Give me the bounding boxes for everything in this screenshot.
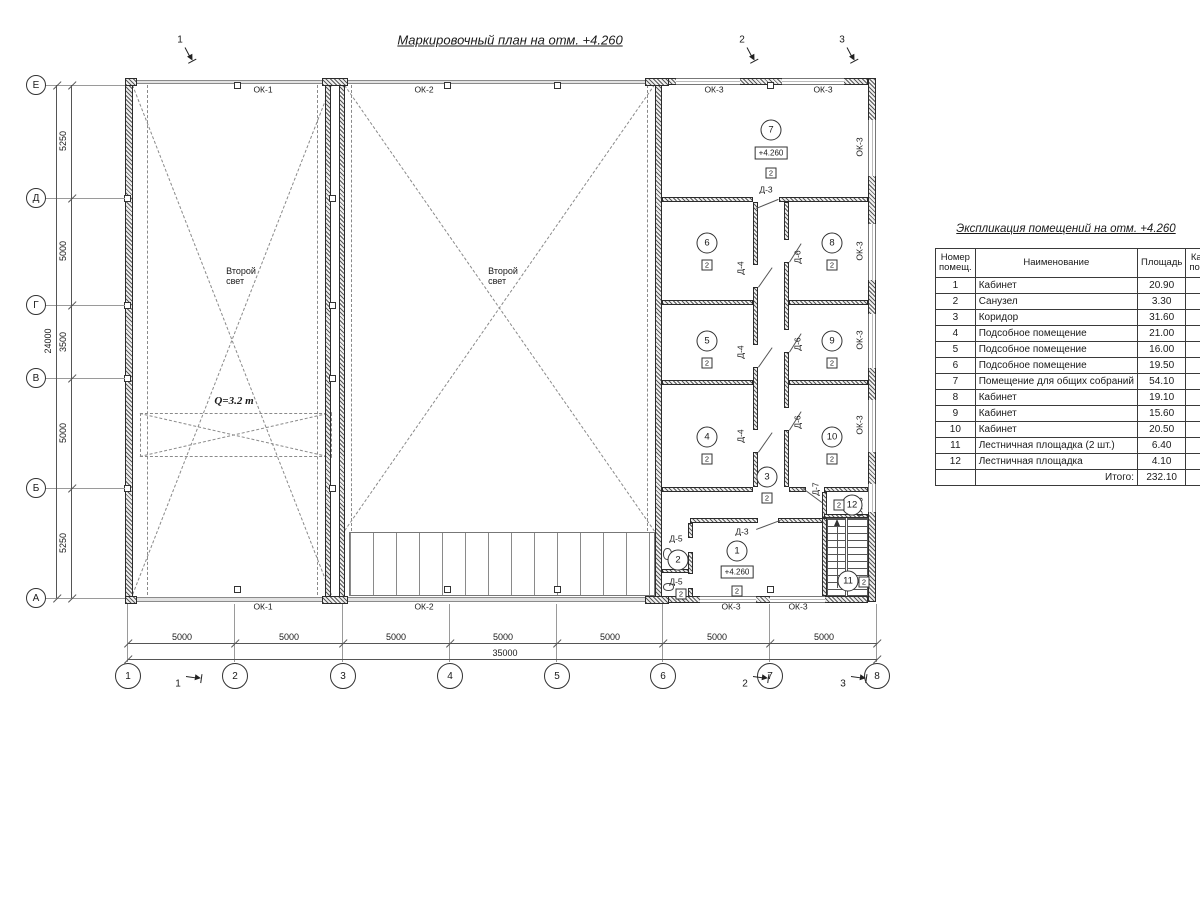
column-marker — [554, 82, 561, 89]
schedule-cell — [1186, 294, 1200, 310]
schedule-cell — [1186, 406, 1200, 422]
room-number-bubble: 3 — [757, 467, 778, 488]
dashed-outline-line — [147, 85, 148, 595]
dim-label: 5250 — [58, 131, 68, 151]
wall — [753, 367, 758, 430]
crane-outline — [140, 413, 332, 457]
room-category-square: 2 — [732, 586, 743, 597]
dim-label: 5000 — [386, 632, 406, 642]
schedule-cell: 54.10 — [1137, 374, 1185, 390]
schedule-row: 7Помещение для общих собраний54.10 — [936, 374, 1200, 390]
wall — [645, 596, 669, 604]
room-category-square: 2 — [859, 577, 870, 588]
column-marker — [767, 586, 774, 593]
schedule-cell: 19.10 — [1137, 390, 1185, 406]
axis-extension-line — [449, 604, 450, 662]
axis-bubble-row: А — [26, 588, 46, 608]
table-title: Экспликация помещений на отм. +4.260 — [956, 223, 1175, 235]
schedule-cell: Кабинет — [975, 422, 1137, 438]
wall — [778, 518, 824, 523]
dim-label: 3500 — [58, 332, 68, 352]
schedule-row: 9Кабинет15.60 — [936, 406, 1200, 422]
axis-bubble-col: 3 — [330, 663, 356, 689]
schedule-cell: 5 — [936, 342, 976, 358]
wall — [784, 352, 789, 408]
dim-line-horizontal-segments — [128, 643, 877, 644]
window-opening — [868, 224, 876, 280]
curtain-wall — [133, 597, 655, 602]
dim-label: 5000 — [58, 241, 68, 261]
schedule-cell — [1186, 390, 1200, 406]
window-label: ОК-3 — [856, 330, 865, 349]
schedule-row: 5Подсобное помещение16.00 — [936, 342, 1200, 358]
note-label: Q=3.2 т — [214, 395, 253, 407]
axis-extension-line — [45, 198, 125, 199]
window-opening — [868, 120, 876, 176]
dim-label: 5000 — [279, 632, 299, 642]
column-marker — [124, 485, 131, 492]
section-mark-number: 2 — [739, 35, 745, 46]
wall — [645, 78, 669, 86]
schedule-cell: 7 — [936, 374, 976, 390]
schedule-row: 10Кабинет20.50 — [936, 422, 1200, 438]
room-number-bubble: 6 — [697, 233, 718, 254]
schedule-cell: Кабинет — [975, 406, 1137, 422]
schedule-header-cell: Наименование — [975, 249, 1137, 278]
window-label: ОК-3 — [856, 415, 865, 434]
door-label: Д-5 — [669, 578, 682, 587]
stair-arrow-head — [834, 519, 840, 526]
wall — [322, 596, 348, 604]
dim-label: 5000 — [58, 423, 68, 443]
axis-bubble-col: 6 — [650, 663, 676, 689]
wall — [824, 487, 868, 492]
schedule-cell: Коридор — [975, 310, 1137, 326]
wall — [662, 487, 753, 492]
axis-extension-line — [234, 604, 235, 662]
schedule-cell: Подсобное помещение — [975, 326, 1137, 342]
schedule-cell: 6.40 — [1137, 438, 1185, 454]
dashed-outline-line — [351, 85, 352, 531]
window-label: ОК-3 — [856, 241, 865, 260]
column-marker — [329, 485, 336, 492]
column-marker — [234, 586, 241, 593]
schedule-cell: 3.30 — [1137, 294, 1185, 310]
section-mark-number: 1 — [177, 35, 183, 46]
axis-extension-line — [45, 378, 125, 379]
elevation-mark: +4.260 — [721, 566, 754, 579]
dim-line-horizontal-total — [128, 659, 877, 660]
room-number-bubble: 4 — [697, 427, 718, 448]
floor-plan-sheet: Маркировочный план на отм. +4.260 Экспли… — [0, 0, 1200, 900]
wall — [784, 430, 789, 487]
column-marker — [329, 195, 336, 202]
wall — [784, 202, 789, 240]
schedule-cell: 16.00 — [1137, 342, 1185, 358]
schedule-row: 1Кабинет20.90 — [936, 278, 1200, 294]
schedule-header-cell: Площадь — [1137, 249, 1185, 278]
column-marker — [124, 302, 131, 309]
door-label: Д-3 — [735, 528, 748, 537]
column-marker — [124, 195, 131, 202]
axis-extension-line — [127, 604, 128, 662]
door-leaf-line — [758, 432, 773, 453]
dashed-outline-line — [647, 85, 648, 531]
schedule-total-cell: 232.10 — [1137, 470, 1185, 486]
wall — [125, 78, 133, 602]
door-label: Д-6 — [794, 337, 803, 350]
column-marker — [329, 302, 336, 309]
column-marker — [444, 82, 451, 89]
platform-strip — [349, 532, 655, 596]
schedule-cell: 1 — [936, 278, 976, 294]
room-number-bubble: 10 — [822, 427, 843, 448]
door-leaf-line — [756, 199, 778, 209]
schedule-cell — [1186, 310, 1200, 326]
section-mark-number: 2 — [742, 679, 748, 690]
schedule-cell: 21.00 — [1137, 326, 1185, 342]
section-mark-arrow — [847, 47, 854, 59]
window-opening — [868, 484, 876, 512]
schedule-cell: Санузел — [975, 294, 1137, 310]
note-label: Второй свет — [226, 266, 256, 286]
room-category-square: 2 — [762, 493, 773, 504]
door-label: Д-5 — [669, 535, 682, 544]
schedule-cell — [1186, 454, 1200, 470]
schedule-cell: 4 — [936, 326, 976, 342]
wall — [789, 380, 868, 385]
schedule-cell: 11 — [936, 438, 976, 454]
room-schedule-table: Номер помещ.НаименованиеПлощадьКат. пом.… — [935, 248, 1200, 486]
schedule-cell: 20.50 — [1137, 422, 1185, 438]
schedule-row: 3Коридор31.60 — [936, 310, 1200, 326]
axis-extension-line — [769, 604, 770, 662]
schedule-cell: 15.60 — [1137, 406, 1185, 422]
schedule-cell: Лестничная площадка (2 шт.) — [975, 438, 1137, 454]
schedule-header-cell: Номер помещ. — [936, 249, 976, 278]
schedule-cell: 4.10 — [1137, 454, 1185, 470]
elevation-mark: +4.260 — [755, 147, 788, 160]
schedule-total-cell — [1186, 470, 1200, 486]
schedule-cell: 2 — [936, 294, 976, 310]
window-label: ОК-1 — [253, 603, 272, 612]
schedule-total-row: Итого:232.10 — [936, 470, 1200, 486]
schedule-cell: Кабинет — [975, 390, 1137, 406]
section-mark-arrow — [185, 47, 192, 59]
window-label: ОК-2 — [414, 603, 433, 612]
axis-bubble-row: В — [26, 368, 46, 388]
schedule-cell — [1186, 438, 1200, 454]
schedule-cell: 9 — [936, 406, 976, 422]
dim-line-vertical-segments — [71, 85, 72, 598]
axis-extension-line — [45, 488, 125, 489]
dim-label: 5000 — [600, 632, 620, 642]
window-label: ОК-3 — [788, 603, 807, 612]
room-number-bubble: 7 — [761, 120, 782, 141]
wall — [662, 596, 868, 603]
door-label: Д-3 — [759, 186, 772, 195]
column-marker — [767, 82, 774, 89]
wall — [125, 78, 137, 86]
axis-extension-line — [342, 604, 343, 662]
room-number-bubble: 2 — [668, 550, 689, 571]
schedule-cell: 12 — [936, 454, 976, 470]
section-mark-number: 3 — [840, 679, 846, 690]
dim-label: 5000 — [814, 632, 834, 642]
wall — [688, 588, 693, 597]
schedule-cell: 3 — [936, 310, 976, 326]
window-label: ОК-1 — [253, 86, 272, 95]
note-label: Второй свет — [488, 266, 518, 286]
schedule-cell: Помещение для общих собраний — [975, 374, 1137, 390]
schedule-total-cell — [936, 470, 976, 486]
window-opening — [868, 400, 876, 452]
window-label: ОК-3 — [813, 86, 832, 95]
schedule-row: 4Подсобное помещение21.00 — [936, 326, 1200, 342]
column-marker — [444, 586, 451, 593]
schedule-cell — [1186, 422, 1200, 438]
drawing-title: Маркировочный план на отм. +4.260 — [397, 33, 622, 48]
schedule-row: 6Подсобное помещение19.50 — [936, 358, 1200, 374]
dim-label: 5000 — [172, 632, 192, 642]
axis-extension-line — [45, 305, 125, 306]
column-marker — [329, 375, 336, 382]
schedule-cell: Кабинет — [975, 278, 1137, 294]
schedule-cell — [1186, 278, 1200, 294]
schedule-cell: Подсобное помещение — [975, 342, 1137, 358]
section-mark-number: 3 — [839, 35, 845, 46]
room-category-square: 2 — [702, 260, 713, 271]
axis-bubble-col: 4 — [437, 663, 463, 689]
axis-bubble-col: 2 — [222, 663, 248, 689]
schedule-row: 11Лестничная площадка (2 шт.)6.40 — [936, 438, 1200, 454]
schedule-cell: Подсобное помещение — [975, 358, 1137, 374]
room-category-square: 2 — [827, 454, 838, 465]
room-number-bubble: 8 — [822, 233, 843, 254]
wall — [339, 84, 345, 598]
section-mark-arrow — [851, 676, 864, 679]
dim-label: 5000 — [493, 632, 513, 642]
schedule-cell — [1186, 358, 1200, 374]
wall — [125, 596, 137, 604]
section-mark-arrow — [747, 47, 754, 59]
door-leaf-line — [758, 267, 773, 288]
wall — [662, 197, 753, 202]
room-category-square: 2 — [702, 358, 713, 369]
room-number-bubble: 12 — [842, 495, 863, 516]
dashed-outline-line — [317, 85, 318, 595]
door-leaf-line — [758, 347, 773, 368]
curtain-wall — [133, 80, 655, 84]
schedule-cell — [1186, 326, 1200, 342]
axis-bubble-col: 1 — [115, 663, 141, 689]
door-label: Д-6 — [794, 250, 803, 263]
schedule-header-cell: Кат. пом. — [1186, 249, 1200, 278]
door-leaf-line — [756, 520, 780, 530]
schedule-cell: 31.60 — [1137, 310, 1185, 326]
window-label: ОК-2 — [414, 86, 433, 95]
schedule-cell: Лестничная площадка — [975, 454, 1137, 470]
schedule-cell — [1186, 374, 1200, 390]
wall — [322, 78, 348, 86]
room-category-square: 2 — [676, 589, 687, 600]
window-label: ОК-3 — [704, 86, 723, 95]
door-label: Д-6 — [794, 415, 803, 428]
door-label: Д-4 — [737, 429, 746, 442]
schedule-cell: 8 — [936, 390, 976, 406]
room-number-bubble: 11 — [838, 571, 859, 592]
room-category-square: 2 — [827, 260, 838, 271]
wall — [690, 518, 758, 523]
room-number-bubble: 9 — [822, 331, 843, 352]
room-category-square: 2 — [834, 500, 845, 511]
schedule-cell: 10 — [936, 422, 976, 438]
dim-label: 5250 — [58, 533, 68, 553]
wall — [688, 523, 693, 538]
section-mark-arrow — [186, 676, 199, 679]
column-marker — [554, 586, 561, 593]
schedule-cell: 6 — [936, 358, 976, 374]
wall — [662, 380, 753, 385]
room-schedule: Номер помещ.НаименованиеПлощадьКат. пом.… — [935, 248, 1200, 486]
schedule-row: 2Санузел3.30 — [936, 294, 1200, 310]
wall — [779, 197, 868, 202]
axis-bubble-col: 8 — [864, 663, 890, 689]
axis-bubble-col: 7 — [757, 663, 783, 689]
room-category-square: 2 — [702, 454, 713, 465]
column-marker — [234, 82, 241, 89]
axis-bubble-row: Б — [26, 478, 46, 498]
schedule-cell: 20.90 — [1137, 278, 1185, 294]
dim-label-total: 24000 — [43, 328, 53, 353]
axis-extension-line — [556, 604, 557, 662]
wall — [753, 287, 758, 345]
axis-bubble-col: 5 — [544, 663, 570, 689]
wall — [789, 300, 868, 305]
axis-extension-line — [662, 604, 663, 662]
window-opening — [868, 314, 876, 368]
column-marker — [124, 375, 131, 382]
axis-bubble-row: Г — [26, 295, 46, 315]
dim-label: 5000 — [707, 632, 727, 642]
dim-line-vertical-total — [56, 85, 57, 598]
schedule-row: 8Кабинет19.10 — [936, 390, 1200, 406]
room-number-bubble: 5 — [697, 331, 718, 352]
room-number-bubble: 1 — [727, 541, 748, 562]
schedule-row: 12Лестничная площадка4.10 — [936, 454, 1200, 470]
axis-extension-line — [876, 604, 877, 662]
dim-label-total: 35000 — [492, 648, 517, 658]
room-category-square: 2 — [827, 358, 838, 369]
wall — [784, 262, 789, 330]
section-mark-number: 1 — [175, 679, 181, 690]
door-label: Д-4 — [737, 345, 746, 358]
door-label: Д-7 — [812, 482, 821, 495]
wall — [655, 82, 662, 598]
wall — [325, 84, 331, 598]
wall — [753, 202, 758, 265]
schedule-cell — [1186, 342, 1200, 358]
schedule-total-cell: Итого: — [975, 470, 1137, 486]
room-category-square: 2 — [766, 168, 777, 179]
schedule-cell: 19.50 — [1137, 358, 1185, 374]
wall — [662, 300, 753, 305]
window-label: ОК-3 — [856, 137, 865, 156]
axis-bubble-row: Д — [26, 188, 46, 208]
window-label: ОК-3 — [721, 603, 740, 612]
door-label: Д-4 — [737, 261, 746, 274]
axis-bubble-row: Е — [26, 75, 46, 95]
